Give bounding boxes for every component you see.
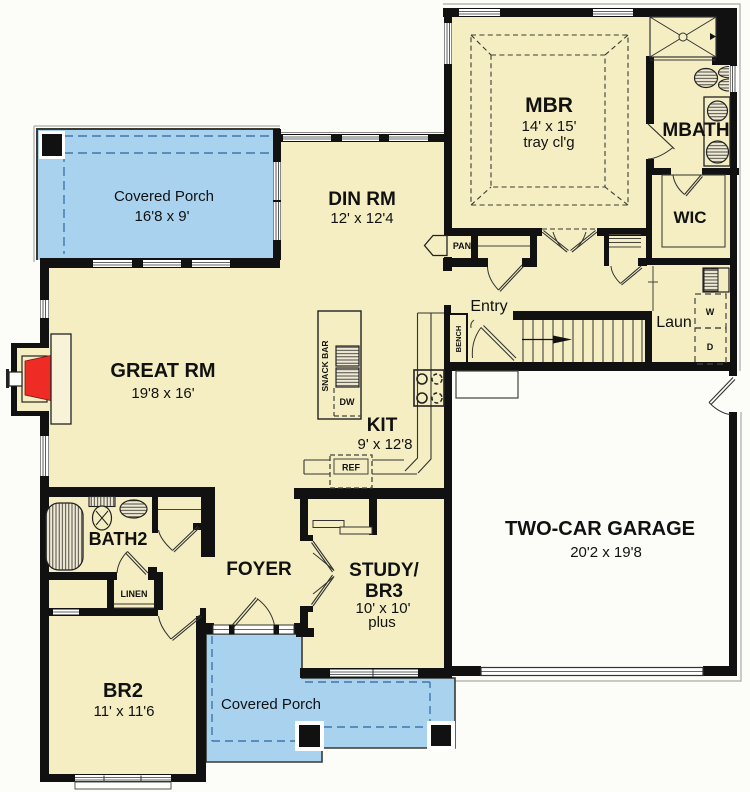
svg-text:MBATH: MBATH bbox=[662, 120, 729, 141]
svg-text:GREAT RM: GREAT RM bbox=[110, 360, 215, 382]
svg-text:BENCH: BENCH bbox=[454, 326, 463, 353]
svg-text:Covered Porch: Covered Porch bbox=[221, 696, 321, 713]
svg-text:12' x 12'4: 12' x 12'4 bbox=[330, 210, 393, 227]
svg-text:14' x 15': 14' x 15' bbox=[522, 118, 577, 135]
svg-text:TWO-CAR GARAGE: TWO-CAR GARAGE bbox=[505, 518, 695, 540]
svg-text:BR3: BR3 bbox=[365, 581, 403, 602]
svg-text:W: W bbox=[706, 307, 715, 317]
svg-text:BATH2: BATH2 bbox=[89, 529, 148, 549]
svg-text:KIT: KIT bbox=[367, 415, 398, 436]
svg-text:plus: plus bbox=[368, 614, 396, 631]
svg-text:D: D bbox=[707, 342, 714, 352]
svg-text:9' x 12'8: 9' x 12'8 bbox=[358, 436, 413, 453]
svg-text:Entry: Entry bbox=[470, 298, 507, 315]
svg-text:REF: REF bbox=[342, 463, 361, 473]
svg-text:WIC: WIC bbox=[673, 208, 706, 227]
svg-text:Covered Porch: Covered Porch bbox=[114, 188, 214, 205]
svg-text:DW: DW bbox=[340, 397, 355, 407]
svg-text:19'8 x 16': 19'8 x 16' bbox=[131, 385, 194, 402]
svg-text:tray cl'g: tray cl'g bbox=[523, 134, 574, 151]
svg-text:DIN RM: DIN RM bbox=[328, 189, 396, 210]
svg-text:MBR: MBR bbox=[525, 94, 573, 117]
svg-text:PAN: PAN bbox=[453, 241, 471, 251]
svg-text:STUDY/: STUDY/ bbox=[349, 560, 419, 581]
svg-text:16'8 x 9': 16'8 x 9' bbox=[135, 208, 190, 225]
svg-text:20'2 x 19'8: 20'2 x 19'8 bbox=[570, 544, 642, 561]
svg-text:SNACK BAR: SNACK BAR bbox=[320, 341, 330, 392]
svg-text:LINEN: LINEN bbox=[121, 589, 148, 599]
svg-text:11' x 11'6: 11' x 11'6 bbox=[93, 703, 154, 720]
svg-text:BR2: BR2 bbox=[103, 680, 143, 702]
svg-text:FOYER: FOYER bbox=[226, 559, 292, 580]
svg-text:Laun: Laun bbox=[656, 314, 692, 331]
